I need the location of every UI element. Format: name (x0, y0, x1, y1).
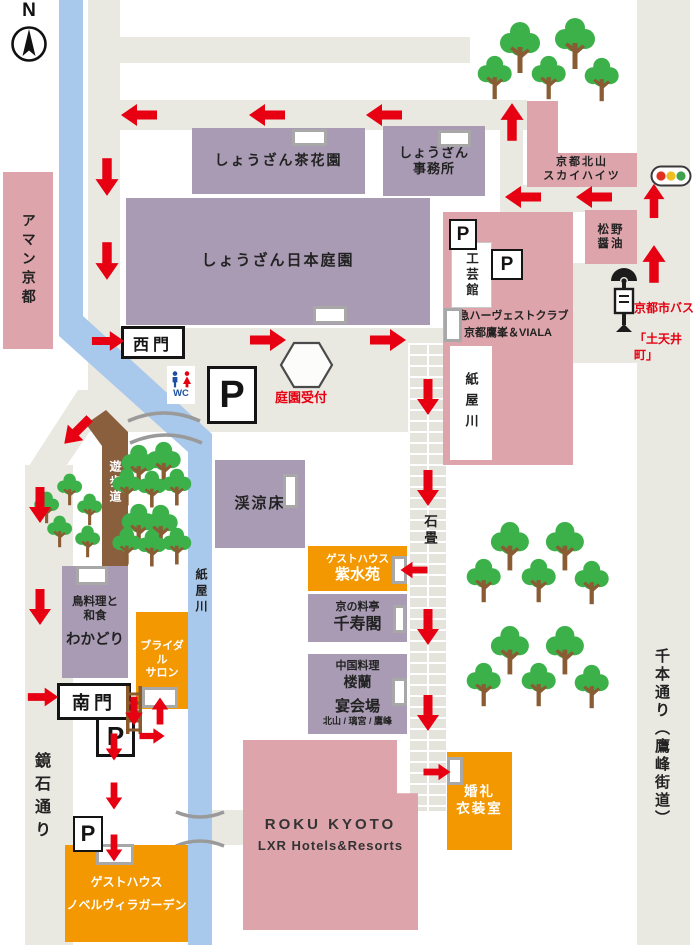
building-banquet-label: 宴会場 (335, 698, 380, 717)
parking-label: P (81, 821, 96, 847)
building-rouran-label: 楼蘭 (344, 674, 372, 692)
tree-icon (476, 55, 513, 101)
route-arrow-down (95, 242, 118, 280)
route-arrow-right (250, 329, 286, 351)
route-arrow-up (500, 103, 523, 141)
west-gate-label: 西門 (133, 331, 173, 355)
tree-icon (573, 664, 610, 710)
entrance-chakaen (292, 129, 327, 146)
bus-stop-line1: 京都市バス (634, 301, 694, 315)
senbon-street-label: 千本通り（鷹峰街道） (650, 648, 672, 828)
parking-label: P (219, 374, 244, 417)
parking-sign-southwest: P (73, 816, 103, 852)
bus-stop-line2: 「土天井町」 (634, 332, 682, 362)
route-arrow-left (249, 104, 285, 126)
entrance-nihon-teien (313, 306, 347, 324)
tree-icon (520, 558, 557, 604)
compass-north-label: N (6, 0, 52, 22)
site-map: 石畳 遊歩道 紙屋川 鏡石通り 千本通り（鷹峰街道） しょうざん茶花園 しょうざ… (0, 0, 700, 945)
kamiya-river-box: 紙屋川 (450, 346, 492, 460)
route-arrow-left (576, 186, 612, 208)
building-senjukaku-label: 千寿閣 (333, 615, 381, 635)
building-keiryosho-label: 渓涼床 (234, 495, 285, 514)
building-nihon-teien-label: しょうざん日本庭園 (201, 252, 354, 271)
tree-icon (465, 558, 502, 604)
route-arrow-down (417, 470, 439, 506)
parking-sign-tokyu-1: P (449, 219, 477, 250)
tree-icon (74, 525, 101, 558)
building-shisuien-type: ゲストハウス (326, 553, 389, 566)
building-roku-kyoto-label: ROKU KYOTO (265, 816, 396, 835)
building-wakadori-type: 鳥料理と 和食 (72, 595, 118, 624)
route-arrow-down (125, 697, 143, 726)
building-chakaen-label: しょうざん茶花園 (215, 152, 343, 170)
south-gate-label: 南門 (72, 689, 116, 715)
building-chakaen: しょうざん茶花園 (192, 128, 365, 194)
building-novel-villa-type: ゲストハウス (90, 875, 162, 890)
entrance-tokyu (444, 308, 462, 342)
building-kogeikan: 工芸館 (451, 242, 492, 308)
route-arrow-down (106, 734, 123, 761)
tree-icon (573, 560, 610, 606)
parking-sign-plaza: P (207, 366, 257, 424)
bridge-marks-south (176, 812, 224, 846)
route-arrow-down (29, 487, 51, 523)
bus-stop-name: 京都市バス 「土天井町」 (634, 301, 700, 363)
route-arrow-down (106, 835, 123, 862)
route-arrow-up (644, 184, 665, 218)
entrance-office (438, 130, 471, 147)
compass: N (6, 0, 52, 66)
route-arrow-right (92, 331, 124, 351)
restroom-icon (169, 371, 193, 388)
building-bridal-salon-label: ブライダル サロン (136, 640, 188, 681)
route-arrow-up (152, 698, 169, 725)
building-matsuno-label: 松野 醤油 (598, 223, 625, 252)
route-arrow-down (417, 379, 439, 415)
building-wakadori-label: わかどり (66, 631, 124, 649)
route-arrow-right (370, 329, 406, 351)
wc-label: WC (173, 388, 189, 399)
tree-icon (583, 57, 620, 103)
route-arrow-down (95, 158, 118, 196)
building-aman-kyoto: アマン京都 (3, 172, 53, 349)
stone-pavement-label: 石畳 (419, 514, 439, 547)
route-arrow-down (106, 783, 123, 810)
building-wedding-dress-label: 婚礼 衣装室 (456, 784, 503, 818)
south-gate-sign: 南門 (57, 683, 131, 720)
route-arrow-right (139, 728, 164, 743)
wc-sign: WC (167, 366, 195, 404)
building-office-label: しょうざん 事務所 (399, 145, 469, 178)
garden-reception-label: 庭園受付 (263, 387, 339, 406)
route-arrow-up (642, 245, 665, 283)
building-roku-kyoto-sub: LXR Hotels&Resorts (258, 838, 403, 854)
route-arrow-right (424, 764, 451, 781)
building-rouran-type: 中国料理 (336, 660, 380, 674)
entrance-wakadori (76, 566, 108, 585)
building-nihon-teien: しょうざん日本庭園 (126, 198, 430, 325)
route-arrow-left (401, 562, 428, 579)
building-shisuien-label: 紫水苑 (335, 566, 380, 585)
route-arrow-down (417, 609, 439, 645)
building-matsuno: 松野 醤油 (585, 210, 637, 264)
entrance-rouran (392, 678, 407, 706)
tree-icon (161, 468, 193, 507)
building-sky-heights: 京都北山 スカイハイツ (527, 153, 637, 187)
west-gate-sign: 西門 (121, 326, 185, 359)
route-arrow-down (417, 695, 439, 731)
tree-icon (520, 662, 557, 708)
kagamiishi-street-label: 鏡石通り (28, 752, 52, 844)
tree-icon (161, 527, 193, 566)
tree-icon (76, 493, 103, 526)
route-arrow-down (29, 589, 51, 625)
route-arrow-left (366, 104, 402, 126)
compass-needle-icon (6, 22, 52, 66)
tree-icon (530, 55, 567, 101)
route-arrow-left (121, 104, 157, 126)
building-novel-villa-label: ノベルヴィラガーデン (66, 898, 186, 913)
entrance-senjukaku (393, 605, 406, 633)
building-senjukaku-type: 京の料亭 (336, 601, 380, 615)
building-sky-heights-wing (527, 101, 558, 154)
kamiya-river-box-label: 紙屋川 (462, 372, 481, 435)
building-sky-heights-label: 京都北山 スカイハイツ (543, 156, 621, 184)
route-arrow-left (505, 186, 541, 208)
parking-sign-tokyu-2: P (491, 249, 523, 280)
building-tokyu-harvest-label: 東急ハーヴェストクラブ 京都鷹峯＆VIALA (443, 308, 573, 341)
garden-reception-hexagon (279, 341, 334, 389)
kamiya-river-label: 紙屋川 (190, 568, 210, 616)
building-kogeikan-label: 工芸館 (462, 252, 481, 299)
route-arrow-right (28, 688, 59, 707)
building-roku-kyoto: ROKU KYOTO LXR Hotels&Resorts (243, 740, 418, 930)
tree-icon (465, 662, 502, 708)
parking-label: P (457, 224, 470, 246)
parking-label: P (501, 254, 514, 276)
building-banquet-rooms: 北山 / 璃宮 / 鷹峰 (323, 716, 392, 727)
entrance-keiryosho (283, 474, 298, 508)
building-aman-kyoto-label: アマン京都 (19, 213, 37, 308)
